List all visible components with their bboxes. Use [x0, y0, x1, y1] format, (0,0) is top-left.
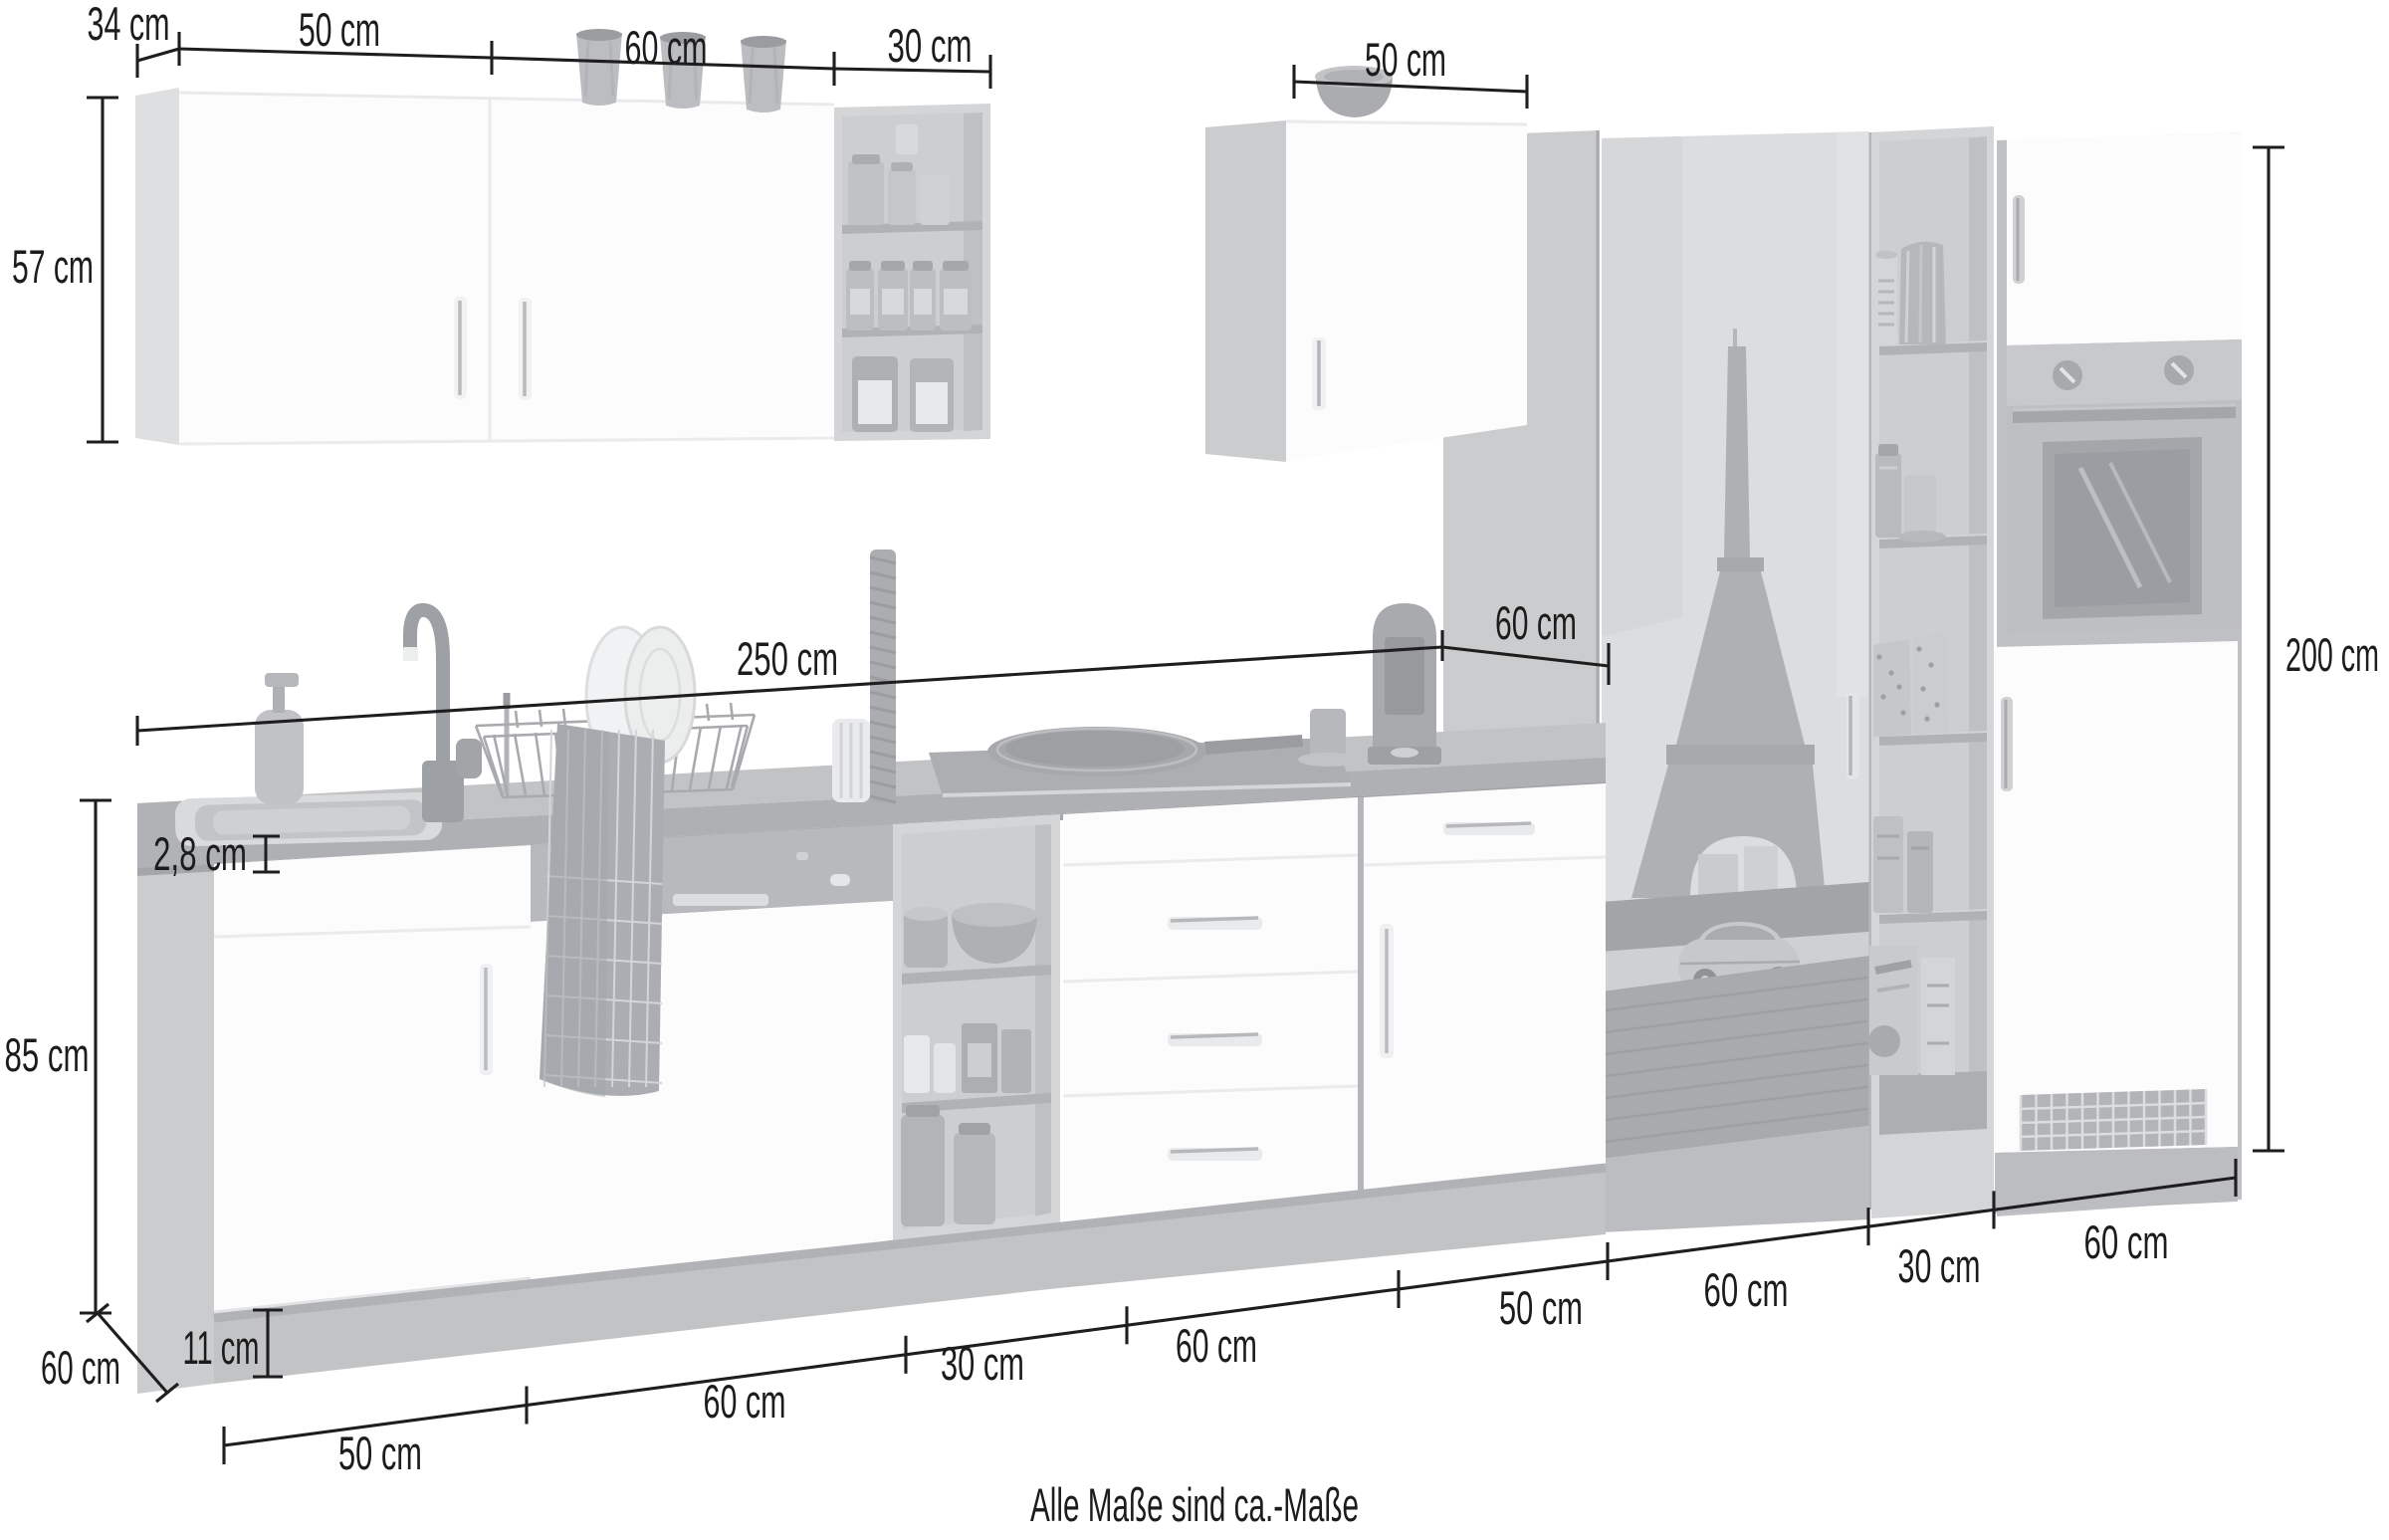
svg-text:30 cm: 30 cm [888, 19, 973, 72]
svg-text:60 cm: 60 cm [704, 1375, 786, 1428]
svg-text:30 cm: 30 cm [941, 1337, 1024, 1390]
svg-text:Alle Maße sind ca.-Maße: Alle Maße sind ca.-Maße [1030, 1478, 1359, 1531]
svg-text:60 cm: 60 cm [2084, 1215, 2169, 1268]
svg-text:30 cm: 30 cm [1898, 1239, 1981, 1292]
svg-text:57 cm: 57 cm [12, 240, 94, 293]
svg-text:11 cm: 11 cm [183, 1321, 260, 1374]
svg-text:85 cm: 85 cm [5, 1028, 90, 1081]
svg-text:2,8 cm: 2,8 cm [153, 827, 247, 880]
svg-text:50 cm: 50 cm [338, 1427, 422, 1479]
svg-text:200 cm: 200 cm [2285, 628, 2379, 681]
svg-text:60 cm: 60 cm [1176, 1319, 1257, 1372]
svg-text:60 cm: 60 cm [41, 1341, 120, 1394]
svg-text:60 cm: 60 cm [625, 21, 708, 74]
svg-text:50 cm: 50 cm [299, 3, 380, 56]
svg-text:60 cm: 60 cm [1495, 596, 1577, 649]
svg-text:60 cm: 60 cm [1704, 1263, 1789, 1316]
svg-text:250 cm: 250 cm [737, 632, 838, 685]
svg-text:50 cm: 50 cm [1499, 1281, 1583, 1334]
svg-text:50 cm: 50 cm [1365, 33, 1446, 86]
svg-text:34 cm: 34 cm [88, 0, 170, 50]
